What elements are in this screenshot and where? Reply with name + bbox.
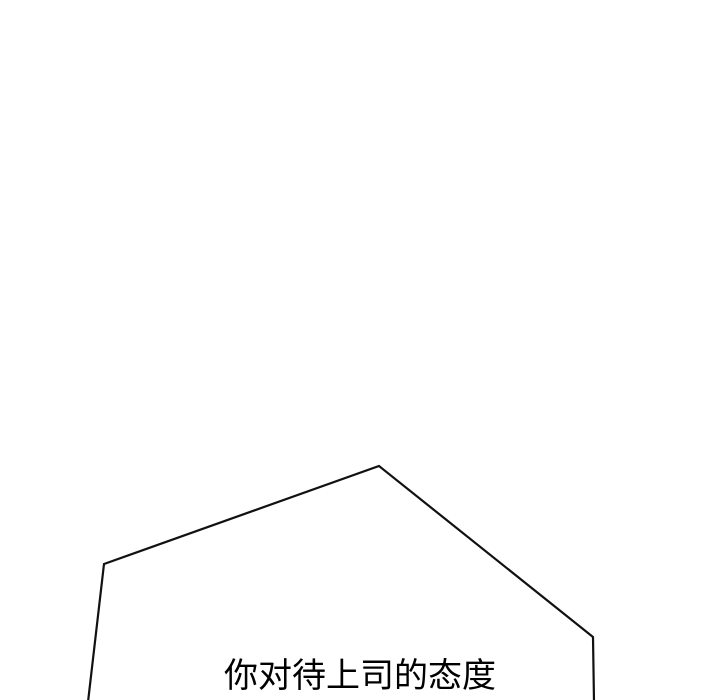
speech-bubble-text: 你对待上司的态度 <box>204 655 516 698</box>
comic-panel: 你对待上司的态度 <box>0 0 720 700</box>
speech-bubble-outline <box>0 0 720 700</box>
